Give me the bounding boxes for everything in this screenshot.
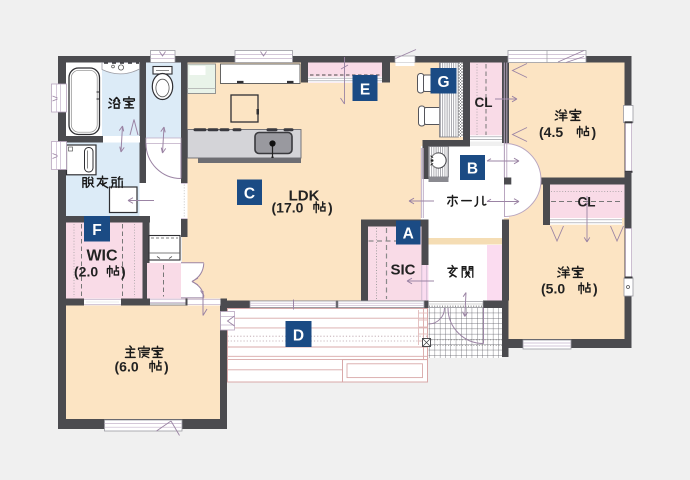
svg-text:A: A [403, 226, 414, 243]
svg-text:): ) [328, 200, 333, 216]
svg-text:(2.0: (2.0 [74, 264, 98, 280]
svg-text:G: G [437, 74, 449, 91]
svg-text:(6.0: (6.0 [115, 359, 139, 375]
svg-text:B: B [467, 161, 478, 178]
svg-text:): ) [164, 359, 169, 375]
svg-text:SIC: SIC [390, 262, 415, 279]
svg-text:D: D [293, 328, 304, 345]
svg-text:): ) [593, 281, 598, 297]
svg-text:E: E [360, 82, 370, 99]
svg-text:WIC: WIC [86, 248, 118, 265]
svg-text:(17.0: (17.0 [272, 200, 304, 216]
svg-text:F: F [92, 222, 101, 239]
svg-text:CL: CL [578, 195, 596, 210]
svg-text:): ) [121, 264, 126, 280]
svg-text:): ) [592, 124, 597, 140]
svg-text:C: C [244, 186, 255, 203]
svg-text:CL: CL [475, 95, 493, 110]
svg-text:(4.5: (4.5 [539, 124, 563, 140]
svg-text:(5.0: (5.0 [541, 281, 565, 297]
